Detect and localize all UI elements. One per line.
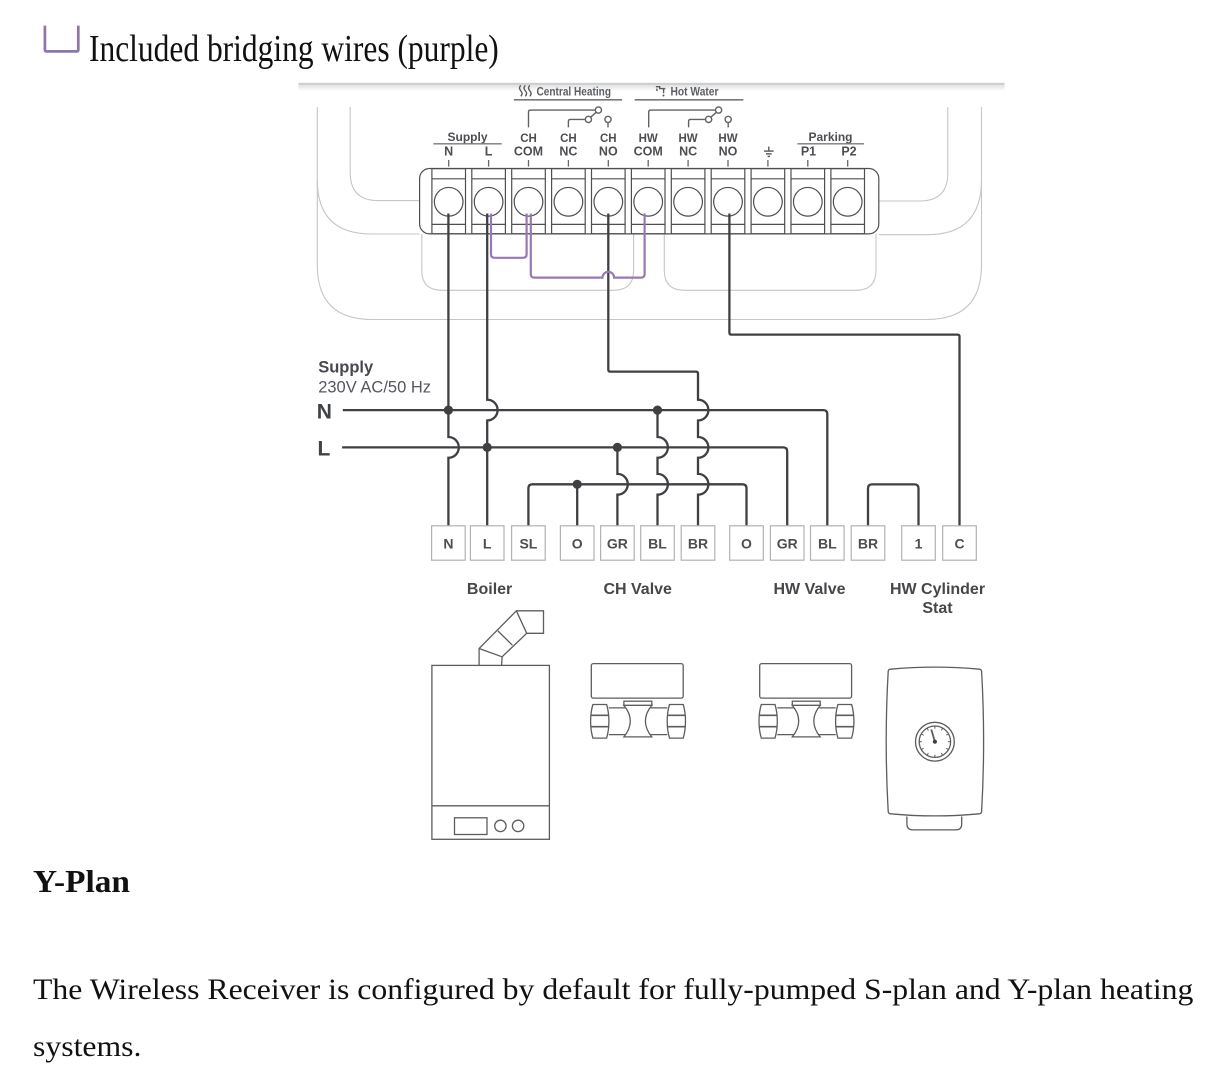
- svg-text:HW: HW: [639, 133, 658, 145]
- svg-text:SL: SL: [519, 536, 537, 552]
- svg-text:HW Valve: HW Valve: [773, 581, 845, 598]
- svg-text:Boiler: Boiler: [467, 581, 512, 598]
- svg-text:L: L: [483, 536, 492, 552]
- svg-text:CH Valve: CH Valve: [603, 581, 672, 598]
- svg-text:NO: NO: [599, 145, 618, 159]
- svg-text:HW Cylinder: HW Cylinder: [890, 581, 985, 598]
- svg-text:Central Heating: Central Heating: [537, 84, 612, 98]
- svg-text:Stat: Stat: [922, 600, 953, 617]
- svg-text:N: N: [443, 536, 453, 552]
- svg-text:N: N: [444, 145, 453, 159]
- svg-text:L: L: [318, 438, 331, 461]
- svg-text:230V AC/50 Hz: 230V AC/50 Hz: [318, 378, 431, 396]
- svg-text:CH: CH: [520, 133, 537, 145]
- svg-text:Supply: Supply: [447, 130, 487, 144]
- svg-text:Supply: Supply: [318, 358, 374, 376]
- svg-text:CH: CH: [560, 133, 577, 145]
- svg-text:P2: P2: [841, 145, 856, 159]
- svg-text:HW: HW: [718, 133, 737, 145]
- svg-text:BL: BL: [818, 536, 837, 552]
- svg-text:L: L: [485, 145, 493, 159]
- svg-text:Hot Water: Hot Water: [671, 84, 719, 98]
- svg-text:O: O: [741, 536, 752, 552]
- svg-text:NO: NO: [719, 145, 738, 159]
- svg-text:NC: NC: [679, 145, 697, 159]
- svg-text:COM: COM: [634, 145, 663, 159]
- svg-text:BR: BR: [688, 536, 708, 552]
- svg-text:1: 1: [915, 536, 923, 552]
- svg-text:Parking: Parking: [808, 130, 852, 144]
- svg-text:P1: P1: [801, 145, 816, 159]
- svg-text:NC: NC: [559, 145, 577, 159]
- svg-text:C: C: [954, 536, 964, 552]
- svg-text:BR: BR: [858, 536, 878, 552]
- svg-text:CH: CH: [600, 133, 617, 145]
- svg-text:HW: HW: [679, 133, 698, 145]
- svg-text:N: N: [317, 401, 332, 424]
- svg-text:O: O: [572, 536, 583, 552]
- svg-text:BL: BL: [648, 536, 667, 552]
- svg-text:GR: GR: [777, 536, 798, 552]
- svg-text:GR: GR: [607, 536, 628, 552]
- svg-text:COM: COM: [514, 145, 543, 159]
